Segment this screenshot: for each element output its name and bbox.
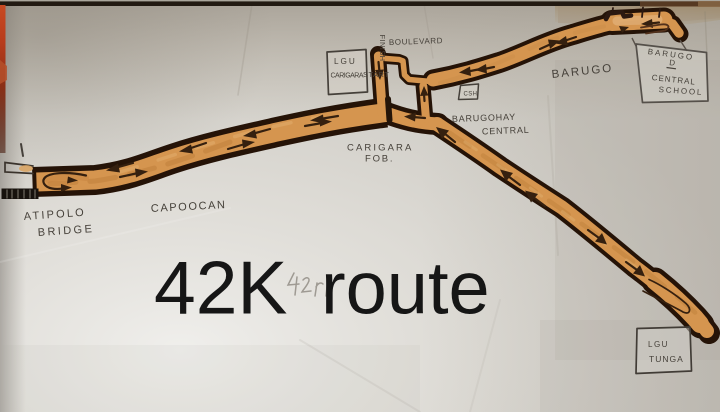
svg-text:FOB.: FOB. (365, 154, 394, 165)
svg-text:CARIGARA: CARIGARA (347, 143, 413, 154)
svg-text:START: START (363, 70, 389, 79)
svg-text:BOULEVARD: BOULEVARD (389, 36, 443, 47)
svg-text:FINISH: FINISH (378, 35, 387, 62)
svg-text:TUNGA: TUNGA (649, 354, 684, 364)
svg-text:LGU: LGU (648, 340, 669, 349)
svg-text:D: D (669, 58, 676, 68)
svg-text:CARIGARA: CARIGARA (331, 73, 364, 80)
svg-text:CENTRAL: CENTRAL (482, 125, 530, 137)
svg-text:route: route (321, 247, 490, 330)
svg-text:42K: 42K (154, 246, 287, 330)
svg-text:CSH: CSH (464, 92, 478, 98)
svg-text:LGU: LGU (334, 57, 357, 66)
